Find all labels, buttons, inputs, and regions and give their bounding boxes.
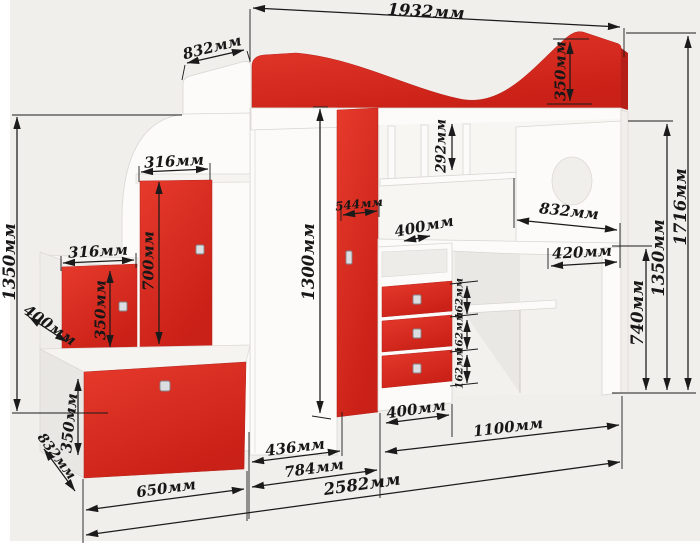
drawer-knob-2 <box>413 329 421 338</box>
wardrobe-door <box>337 108 378 417</box>
dim-label-stairs-height: 1350мм <box>0 223 19 300</box>
dim-label-wardrobe-height: 1300мм <box>299 223 318 300</box>
shelf-divider-1 <box>388 126 395 179</box>
bench-drawer-handle <box>160 381 170 391</box>
bed-panel-side-edge <box>621 48 628 110</box>
drawer-knob-1 <box>413 295 421 304</box>
dim-label-desk-corner-depth: 420мм <box>552 242 613 263</box>
right-panel-front <box>602 247 621 395</box>
lower-door-handle <box>119 302 127 311</box>
dim-label-drawer-height-3: 162мм <box>454 347 466 389</box>
dim-label-shelf-opening-height: 292мм <box>434 119 450 174</box>
dim-label-bed-panel-height: 350мм <box>551 41 569 101</box>
bench-drawer-front <box>84 362 246 478</box>
dim-label-overall-height: 1716мм <box>671 168 690 245</box>
dim-label-loft-clearance-height: 1350мм <box>649 219 668 296</box>
dim-label-desk-height: 740мм <box>628 280 647 346</box>
shelf-divider-2 <box>421 125 428 178</box>
porthole-hole <box>552 157 592 205</box>
right-side-strip <box>621 110 628 393</box>
diagram-canvas: 1932мм 832мм 350мм 1716мм 1350мм 740мм 8… <box>0 0 700 549</box>
upper-door-handle <box>196 245 204 254</box>
middle-cabinet <box>250 108 337 455</box>
drawer-knob-3 <box>413 364 421 373</box>
furniture-dimension-diagram: 1932мм 832мм 350мм 1716мм 1350мм 740мм 8… <box>0 0 700 549</box>
dim-label-lower-step-door-height: 350мм <box>91 280 109 340</box>
dim-label-upper-step-door-width: 316мм <box>144 151 205 172</box>
wardrobe-door-handle <box>346 251 352 264</box>
drawer-unit-open-slot <box>382 249 447 277</box>
shelf-divider-3 <box>463 124 470 176</box>
dim-label-lower-step-door-width: 316мм <box>68 241 129 262</box>
dim-label-upper-step-door-height: 700мм <box>139 231 157 291</box>
